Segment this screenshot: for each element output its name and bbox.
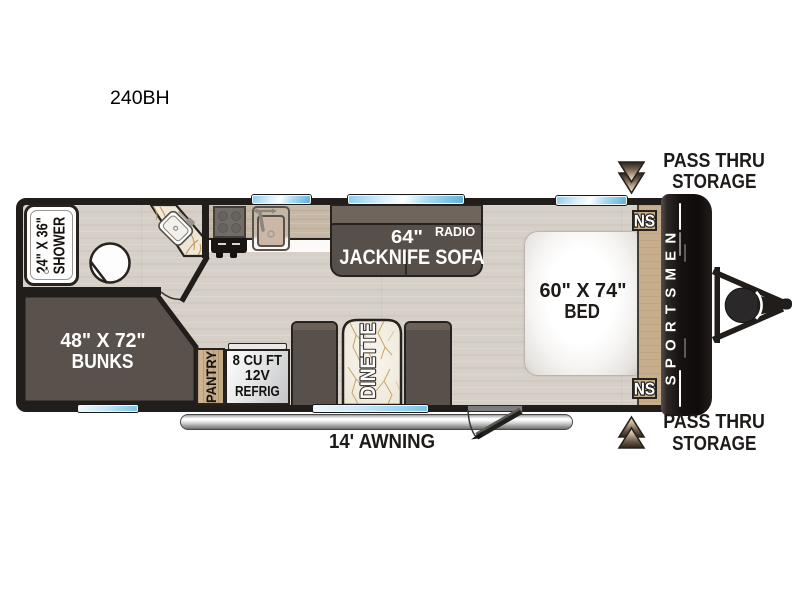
svg-text:DINETTE: DINETTE [357, 323, 380, 399]
svg-text:NS: NS [634, 380, 655, 399]
svg-text:NS: NS [634, 212, 655, 231]
